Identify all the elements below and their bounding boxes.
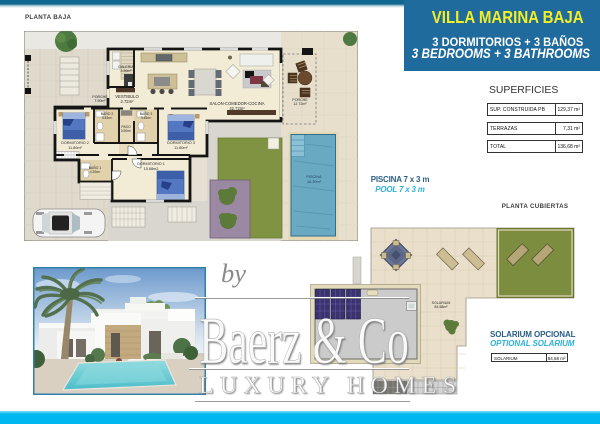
- svg-text:2.72m²: 2.72m²: [120, 99, 134, 104]
- svg-text:7.90m²: 7.90m²: [94, 99, 106, 103]
- svg-text:3.45m²: 3.45m²: [141, 116, 152, 120]
- svg-text:15.68m2: 15.68m2: [144, 167, 159, 171]
- svg-text:DORMITORIO 3: DORMITORIO 3: [167, 141, 195, 145]
- svg-text:3.30m²: 3.30m²: [120, 69, 132, 73]
- svg-text:4.20m²: 4.20m²: [90, 170, 101, 174]
- svg-text:3.50m²: 3.50m²: [121, 129, 132, 133]
- svg-text:84,58m²: 84,58m²: [434, 305, 448, 309]
- svg-text:12.72m²: 12.72m²: [293, 102, 307, 106]
- svg-text:PISCINA: PISCINA: [306, 175, 322, 179]
- svg-text:11.80m²: 11.80m²: [174, 146, 188, 150]
- svg-text:11.80m²: 11.80m²: [68, 146, 82, 150]
- svg-text:DORMITORIO 1: DORMITORIO 1: [137, 162, 165, 166]
- svg-text:42.72m²: 42.72m²: [229, 106, 245, 111]
- svg-text:DORMITORIO 2: DORMITORIO 2: [61, 141, 89, 145]
- svg-text:16.30m²: 16.30m²: [307, 180, 322, 184]
- svg-text:3.45m²: 3.45m²: [102, 116, 113, 120]
